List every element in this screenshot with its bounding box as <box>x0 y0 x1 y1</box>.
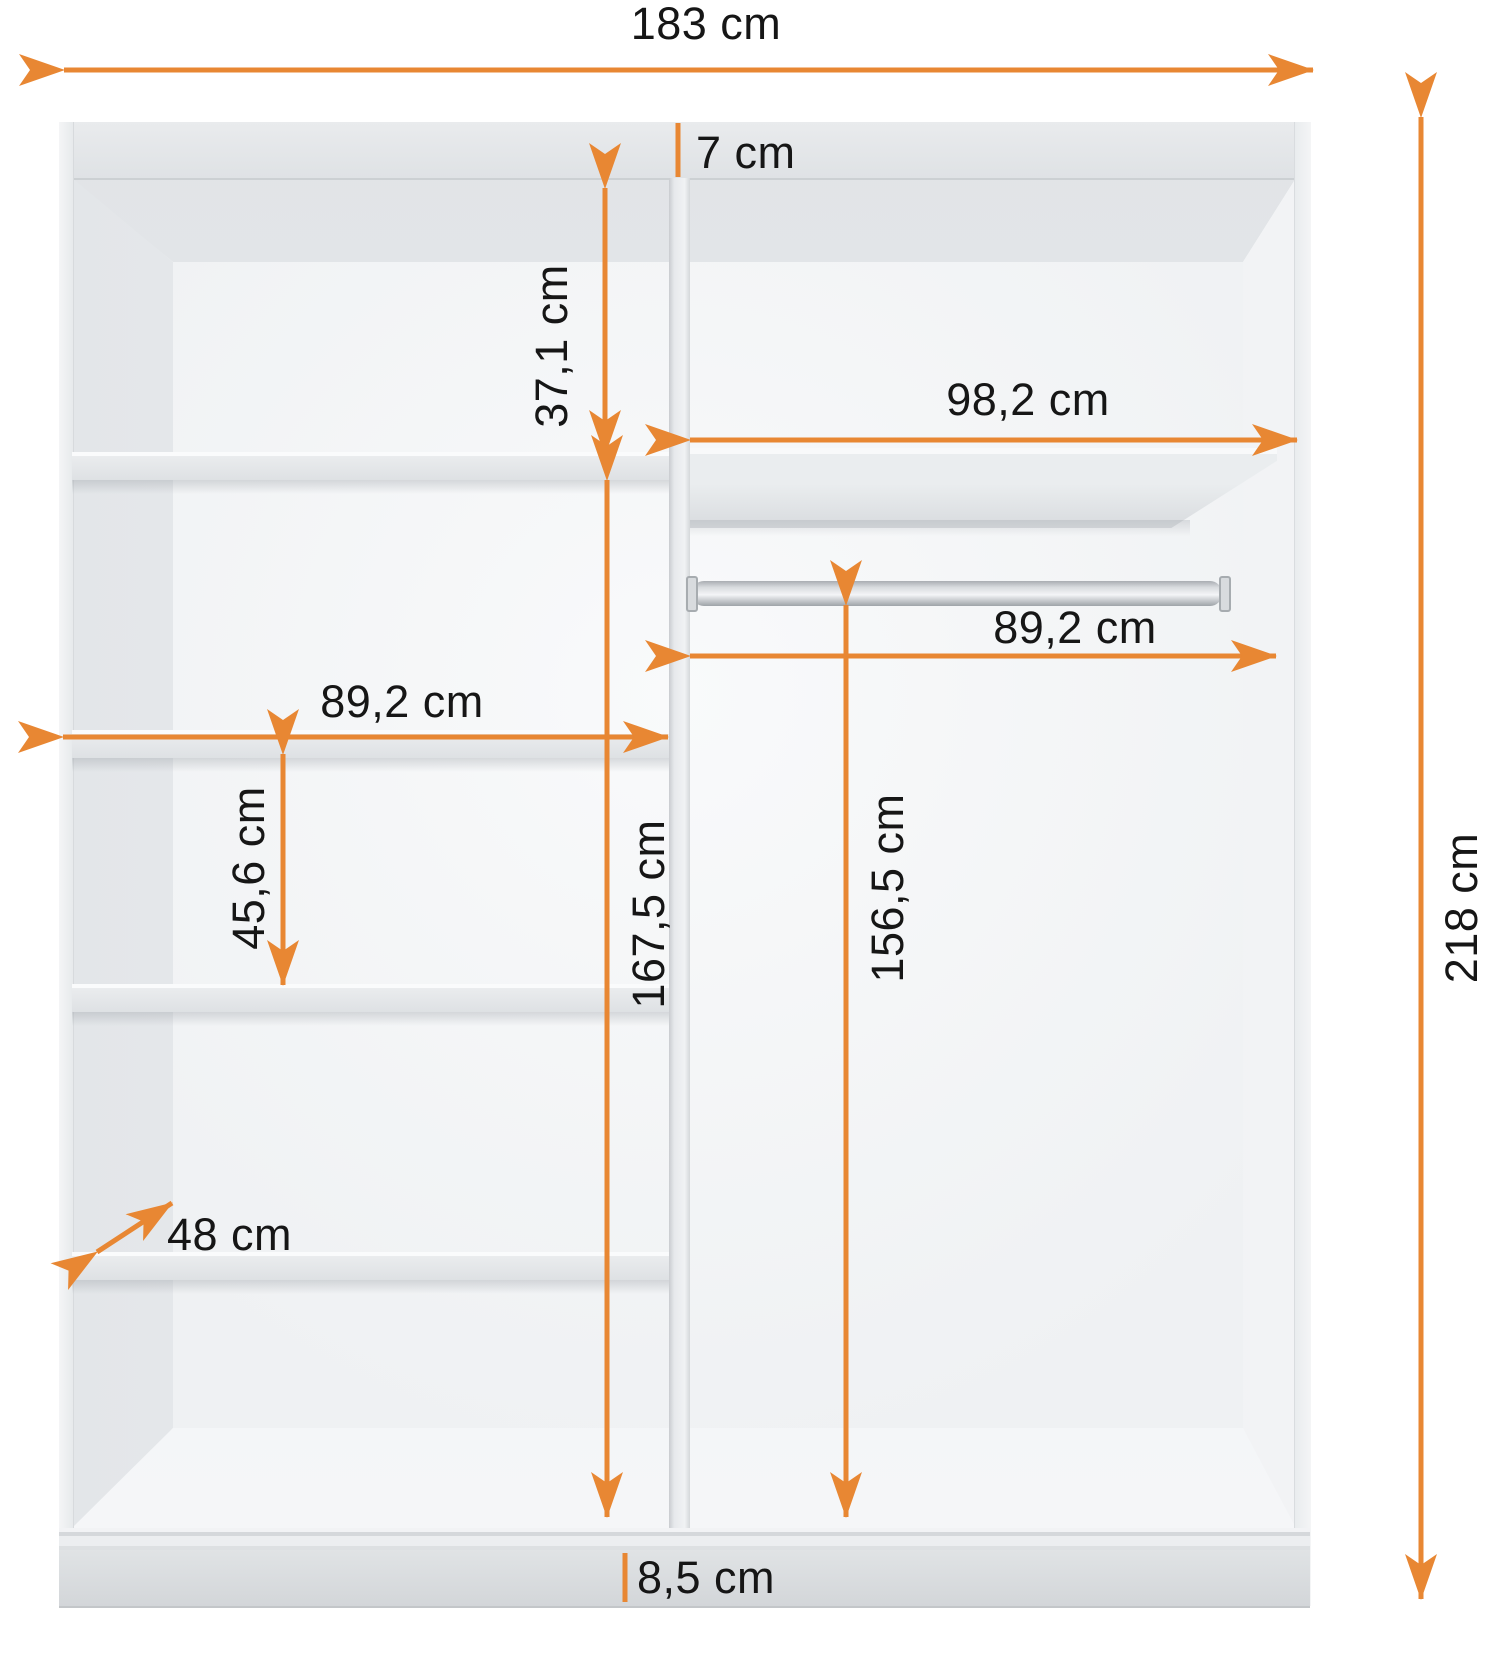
shelf-front-edge <box>72 988 669 1012</box>
shelf-under-shadow <box>72 1280 669 1294</box>
wardrobe-dimension-diagram: 183 cm 218 cm 7 cm 37,1 cm 98,2 cm 89,2 … <box>0 0 1500 1654</box>
dim-label-top-panel: 7 cm <box>696 130 796 176</box>
shelf-under-shadow <box>72 758 669 772</box>
dim-label-shelf-spacing: 45,6 cm <box>226 728 272 1008</box>
dim-label-right-compartment-width: 98,2 cm <box>878 377 1178 423</box>
dim-label-total-height: 218 cm <box>1439 768 1485 1048</box>
right-shelf <box>690 448 1277 528</box>
top-panel <box>59 122 1310 180</box>
shelf-under-shadow <box>72 480 669 494</box>
dim-label-upper-shelf-gap: 37,1 cm <box>529 206 575 486</box>
left-side-panel <box>59 122 74 1606</box>
shelf-front-edge <box>72 1256 669 1280</box>
left-shelf-3 <box>72 984 669 1026</box>
dim-label-depth: 48 cm <box>167 1212 292 1258</box>
bottom-panel-edge <box>59 1528 1310 1550</box>
shelf-front-edge <box>72 456 669 480</box>
dim-label-left-compartment-height: 167,5 cm <box>626 774 672 1054</box>
right-side-panel <box>1294 122 1311 1606</box>
dim-label-rod-length: 89,2 cm <box>925 605 1225 651</box>
left-shelf-1 <box>72 452 669 494</box>
shelf-front-edge <box>72 734 669 758</box>
dim-label-rod-clearance-height: 156,5 cm <box>865 748 911 1028</box>
dim-label-plinth-height: 8,5 cm <box>637 1555 775 1601</box>
dim-label-total-width: 183 cm <box>556 1 856 47</box>
dim-label-left-shelf-width: 89,2 cm <box>252 679 552 725</box>
right-shelf-shadow <box>690 520 1190 536</box>
left-shelf-4 <box>72 1252 669 1294</box>
left-shelf-2 <box>72 730 669 772</box>
rod-bracket-left <box>686 576 698 612</box>
shelf-under-shadow <box>72 1012 669 1026</box>
